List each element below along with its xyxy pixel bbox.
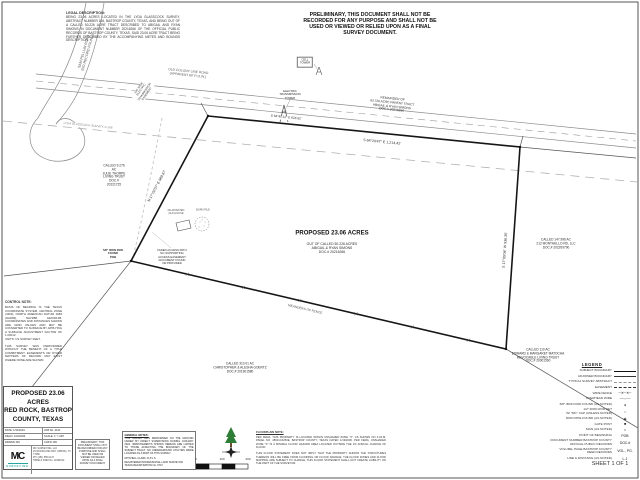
old-house-icon — [176, 220, 191, 231]
floodplain-note-text: PER FEMA, THIS PROPERTY IS LOCATED WITHI… — [256, 436, 386, 466]
old-house-label: DILAPIDATED OLD HOUSE — [168, 209, 185, 215]
survey-plat-sheet: LEGAL DESCRIPTION: BEING 23.06 ACRES LOC… — [0, 0, 640, 480]
checked-by-field: CHK'D: RD — [43, 440, 72, 445]
doc-number-symbol: DOC.# — [612, 441, 638, 445]
legend-item-iron-rod-found: 5/8" IRON ROD FOUND (AS NOTED) ● — [546, 403, 638, 407]
legend: LEGEND SUBJECT BOUNDARY ADJOINER BOUNDAR… — [546, 362, 638, 462]
dash-line-symbol — [612, 386, 638, 390]
title-block: PROPOSED 23.06 ACRES RED ROCK, BASTROP C… — [3, 386, 73, 470]
floodplain-note-heading: FLOODPLAIN NOTE: — [256, 431, 284, 434]
transmission-tower-label: ELECTRIC TRANSMISSION TOWER — [279, 90, 300, 100]
abstract-line — [3, 121, 637, 182]
open-square-symbol: □ — [612, 428, 638, 432]
logo-text: MC — [11, 452, 25, 462]
scale-field: SCALE: 1" = 200' — [43, 434, 72, 439]
adjoiner-goertz: CALLED 310.01 AC CHRISTOPHER & ALESHA GO… — [213, 362, 266, 373]
scale-tick-100: 100 — [219, 458, 224, 462]
drawn-by-field: DRAWN: MC — [4, 440, 43, 445]
north-arrow-icon — [222, 427, 240, 458]
logo-subtext: SURVEYING — [6, 465, 28, 468]
burn-pile-label: BURN PILE — [196, 208, 210, 211]
preliminary-notice: PRELIMINARY, THIS DOCUMENT SHALL NOT BE … — [300, 12, 440, 37]
access-path-note: FADED ACCESS PATH NO SUPPORTING ACCESS E… — [157, 249, 186, 265]
title-row: FIELD: 1/24/2024 SCALE: 1" = 200' — [4, 433, 72, 439]
filled-square-symbol: ■ — [612, 422, 638, 426]
legend-item-gate-post: GATE POST ■ — [546, 422, 638, 426]
main-road-lines — [36, 74, 636, 148]
general-notes-box: GENERAL NOTES: THIS SURVEY WAS PERFORMED… — [122, 431, 196, 470]
title-bottom: MC SURVEYING MC SURVEYING, LLC 26 WOODLA… — [4, 445, 72, 474]
surveyor-signature: MITCHELL CLARK, R.P.L.S. REGISTERED PROF… — [125, 457, 194, 467]
legend-item-doc-number: DOCUMENT NUMBER BASTROP COUNTY OFFICIAL … — [546, 439, 638, 446]
pob-symbol: POB — [612, 434, 638, 438]
legend-item-easement: EASEMENT — [546, 386, 638, 390]
field-date-field: FIELD: 1/24/2024 — [4, 434, 43, 439]
title-row: DRAWN: MC CHK'D: RD — [4, 439, 72, 445]
open-circle-symbol: ○ — [612, 410, 638, 414]
scale-tick-0: 0 — [195, 458, 197, 462]
adjoiner-thorpe: CALLED 9.276 AC JULIE THORPE LIVING TRUS… — [103, 165, 126, 188]
overhead-wire-symbol: ──◦── — [612, 397, 638, 401]
subject-tract-details: OUT OF CALLED 50.226 ACRES ABIGAIL & RYA… — [307, 242, 358, 254]
legend-item-adjoiner-boundary: ADJOINER BOUNDARY — [546, 375, 638, 379]
project-title: PROPOSED 23.06 ACRES RED ROCK, BASTROP C… — [4, 387, 72, 427]
legend-item-iron-rod-set: 1/2" IRON ROD SET W/ "MC" CAP (UNLESS NO… — [546, 408, 638, 415]
scale-tick-200: 200 — [245, 458, 250, 462]
date-field: DATE: 1/31/2024 — [4, 428, 43, 433]
cell-tower-icon — [314, 64, 322, 75]
job-field: JOB No. 4131 — [43, 428, 72, 433]
preliminary-stamp-box: PRELIMINARY, THIS DOCUMENT SHALL NOT BE … — [75, 439, 110, 470]
legend-item-vol-pg: VOLUME, PAGE BASTROP COUNTY DEED RECORDS… — [546, 448, 638, 455]
legend-item-wire-fence: WIRE FENCE ─✕─✕─ — [546, 391, 638, 395]
title-row: DATE: 1/31/2024 JOB No. 4131 — [4, 427, 72, 433]
subject-tract-title: PROPOSED 23.06 ACRES — [295, 230, 368, 237]
gray-dash-line-symbol — [612, 380, 638, 384]
legend-item-abstract: TYPICAL SURVEY ABSTRACT — [546, 380, 638, 384]
scale-bar — [196, 464, 248, 469]
legend-item-subject-boundary: SUBJECT BOUNDARY — [546, 369, 638, 373]
legend-item-pob: POINT OF BEGINNING POB — [546, 434, 638, 438]
legal-description-text: BEING 23.06 ACRES LOCATED IN THE LYDA GL… — [66, 16, 180, 43]
firm-info: MC SURVEYING, LLC 26 WOODLAND WAY, SPRIN… — [32, 446, 72, 474]
circled-dot-symbol: ◉ — [612, 417, 638, 421]
general-notes-text: THIS SURVEY WAS PERFORMED ON THE GROUND … — [125, 437, 194, 456]
sheet-number: SHEET 1 OF 1 — [592, 461, 629, 467]
thin-line-symbol — [612, 375, 638, 379]
legend-item-sign: SIGN (AS NOTED) □ — [546, 428, 638, 432]
control-note-text: BASIS OF BEARING IS THE TEXAS COORDINATE… — [5, 306, 62, 363]
cell-tower-label: CELL TOWER — [297, 57, 313, 68]
burn-pile-icon — [195, 217, 209, 231]
vol-pg-symbol: VOL., PG. — [612, 449, 638, 453]
company-logo: MC SURVEYING — [4, 446, 32, 474]
legend-title: LEGEND — [546, 362, 638, 367]
fence-line-symbol: ─✕─✕─ — [612, 391, 638, 395]
pob-label: 5/8" IRON ROD FOUND POB — [103, 249, 123, 259]
access-path-leader — [152, 232, 171, 248]
filled-circle-symbol: ● — [612, 403, 638, 407]
legend-item-iron-pipe: IRON PIPE FOUND (AS NOTED) ◉ — [546, 417, 638, 421]
adjoiner-monthello: CALLED 147.996 AC 212 MONTHELLO RD, LLC … — [536, 238, 575, 249]
thick-line-symbol — [612, 369, 638, 373]
legend-item-overhead-wire: OVERHEAD WIRE ──◦── — [546, 397, 638, 401]
